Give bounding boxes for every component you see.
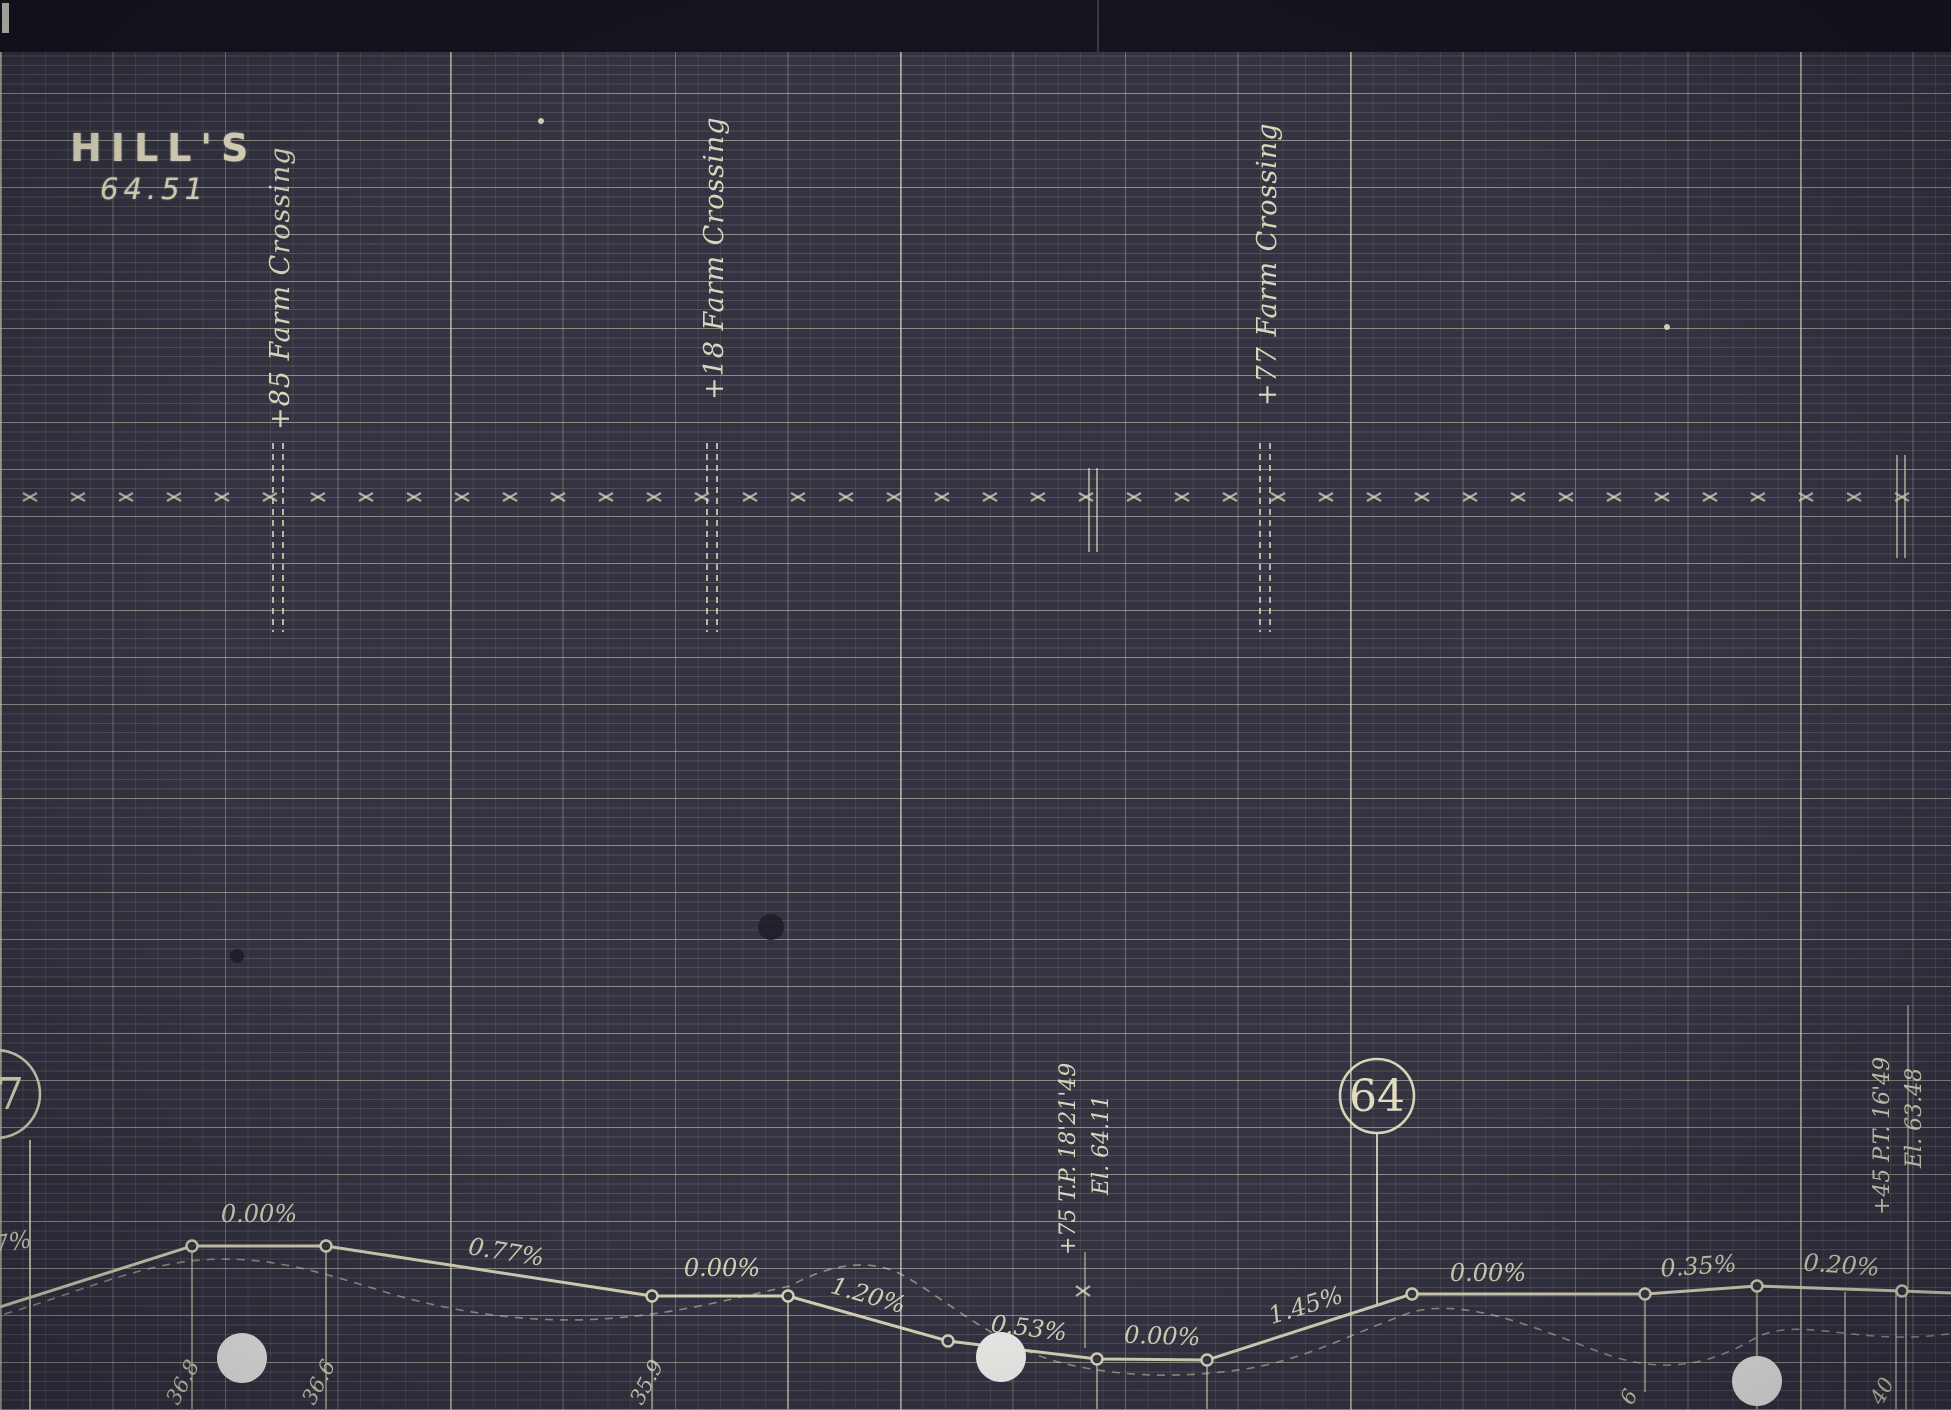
- grade-label: 7%: [0, 1225, 34, 1259]
- grade-label: 0.35%: [1659, 1249, 1737, 1282]
- grade-label: 0.00%: [221, 1200, 297, 1228]
- annotation-label: +75 T.P. 18'21'49: [1056, 1063, 1081, 1255]
- grade-label: 0.20%: [1803, 1248, 1881, 1281]
- ink-blot: [758, 914, 784, 940]
- profile-drawing-overlay: 7%0.00%0.77%0.00%1.20%0.53%0.00%1.45%0.0…: [0, 0, 1951, 1410]
- station-number: 37: [0, 1069, 24, 1120]
- grade-break-node: [1897, 1286, 1908, 1297]
- grade-break-node: [783, 1291, 794, 1302]
- punch-hole: [1732, 1356, 1782, 1406]
- grade-break-node: [1640, 1289, 1651, 1300]
- elevation-label: 36.6: [297, 1356, 340, 1409]
- grade-break-node: [1092, 1354, 1103, 1365]
- elevation-label: 36.8: [161, 1356, 204, 1409]
- paper-speck: [538, 118, 544, 124]
- crossing-label: +18 Farm Crossing: [699, 117, 730, 401]
- grade-break-node: [187, 1241, 198, 1252]
- elevation-label: 35.9: [625, 1356, 668, 1409]
- punch-hole: [217, 1333, 267, 1383]
- grade-label: 0.00%: [1124, 1321, 1201, 1352]
- blueprint-page: HILL'S 64.51 7%0.00%0.77%0.00%1.20%0.53%…: [0, 0, 1951, 1410]
- grade-break-node: [1202, 1355, 1213, 1366]
- grade-break-node: [321, 1241, 332, 1252]
- elevation-label: 6: [1615, 1385, 1642, 1408]
- annotation-label: El. 63.48: [1902, 1068, 1927, 1169]
- grade-label: 0.77%: [466, 1232, 546, 1272]
- grade-break-node: [1407, 1289, 1418, 1300]
- annotation-label: +45 P.T. 16'49: [1870, 1057, 1895, 1215]
- punch-hole: [976, 1332, 1026, 1382]
- station-number: 64: [1349, 1071, 1405, 1122]
- paper-speck: [1664, 324, 1670, 330]
- grade-label: 0.00%: [1450, 1259, 1526, 1287]
- crossing-label: +85 Farm Crossing: [265, 147, 296, 431]
- grade-break-node: [647, 1291, 658, 1302]
- grade-break-node: [943, 1336, 954, 1347]
- ink-blot: [230, 949, 244, 963]
- annotation-label: El. 64.11: [1089, 1095, 1114, 1196]
- grade-label: 1.45%: [1265, 1281, 1346, 1330]
- elevation-label: 40: [1865, 1373, 1899, 1409]
- grade-label: 0.00%: [684, 1254, 760, 1282]
- ground-line: [0, 1259, 1951, 1375]
- crossing-label: +77 Farm Crossing: [1252, 123, 1283, 407]
- grade-break-node: [1752, 1281, 1763, 1292]
- profile-grade-line: [0, 1246, 1951, 1360]
